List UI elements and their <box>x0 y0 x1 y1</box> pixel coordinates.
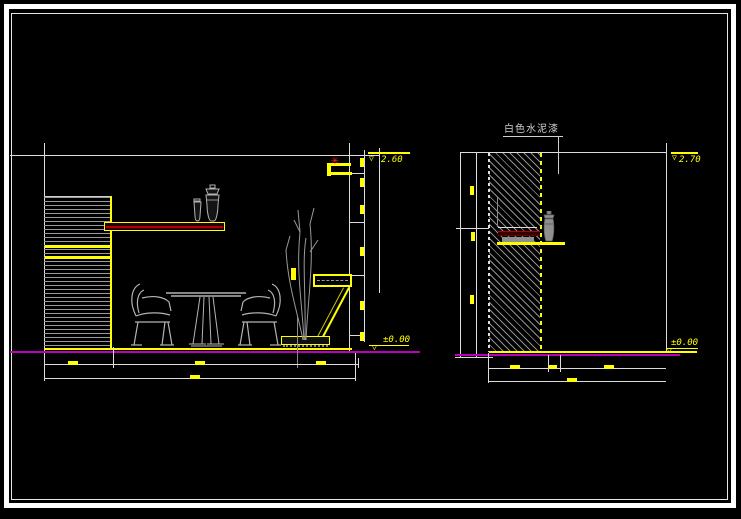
finish-note-label: 白色水泥漆 <box>504 124 559 135</box>
dim-text-mark <box>360 332 364 341</box>
left-floor-line-yellow <box>44 348 352 350</box>
right-floor-elevation-label: ±0.00 <box>671 339 698 348</box>
right-top-elevation-label: 2.70 <box>679 156 701 165</box>
left-floor-line-magenta <box>10 351 420 353</box>
cabinet-stripe <box>45 245 110 248</box>
extension-line <box>355 353 356 381</box>
finish-note-underline <box>503 136 563 137</box>
extension-line <box>297 316 298 368</box>
display-vase <box>542 211 556 242</box>
elevation-triangle-icon: ▽ <box>667 347 672 355</box>
dim-text-mark <box>360 247 364 256</box>
left-extension-line <box>379 148 380 293</box>
extension-line <box>44 353 45 381</box>
dim-text-mark <box>510 365 520 369</box>
dim-connector <box>456 228 489 229</box>
dim-tick <box>358 358 359 368</box>
elevation-triangle-icon: ▽ <box>672 154 677 162</box>
niche-leader <box>497 197 498 227</box>
display-shelf <box>104 222 225 231</box>
dim-text-mark <box>360 205 364 214</box>
left-top-elevation-label: 2.60 <box>381 156 403 165</box>
dim-tick <box>560 355 561 372</box>
right-floor-line-yellow <box>489 351 697 353</box>
dim-text-mark <box>316 361 326 365</box>
dim-text-mark <box>360 301 364 310</box>
dim-text-mark <box>68 361 78 365</box>
right-dim-row-2 <box>488 381 666 382</box>
dim-text-mark <box>195 361 205 365</box>
dim-text-mark <box>470 186 474 195</box>
armchair-right <box>228 282 286 348</box>
dim-text-mark <box>360 158 364 167</box>
niche-top-line <box>498 227 537 228</box>
left-top-line <box>10 155 379 156</box>
sheet-inner-border <box>11 13 728 500</box>
dim-connector <box>349 222 365 223</box>
niche-red-band <box>498 231 540 236</box>
planter-root-marks <box>283 345 328 347</box>
right-extension-line <box>666 143 667 353</box>
dim-text-mark <box>470 295 474 304</box>
cabinet-hatch-panel <box>44 196 111 349</box>
cabinet-right-edge <box>110 196 112 348</box>
left-floor-elevation-label: ±0.00 <box>383 336 410 345</box>
armchair-left <box>126 282 184 348</box>
wall-bracket-bottom <box>327 172 352 175</box>
dim-text-mark <box>604 365 614 369</box>
plant-star-icon: ✳ <box>331 154 339 167</box>
dim-text-mark <box>549 365 557 369</box>
shelf-red-core <box>106 226 223 228</box>
dim-text-mark <box>360 178 364 187</box>
elevation-triangle-icon: ▽ <box>369 155 374 163</box>
elevation-triangle-icon: ▽ <box>372 344 377 352</box>
dim-tick <box>548 355 549 372</box>
niche-shelf-line <box>497 242 565 245</box>
column-hatch <box>489 153 540 352</box>
dim-text-mark <box>471 232 475 241</box>
right-dim-line-outer <box>460 153 461 357</box>
column-edge-right <box>540 153 542 352</box>
cabinet-stripe <box>45 256 110 259</box>
elevation-overline <box>368 152 410 154</box>
right-dim-line-inner <box>476 153 477 357</box>
cad-drawing-canvas: ▽ 2.60 ✳ <box>0 0 741 519</box>
dim-text-mark <box>190 375 200 379</box>
vase-pair <box>187 184 223 223</box>
column-edge-left <box>488 153 490 352</box>
dim-text-mark <box>567 378 577 382</box>
left-vertical-dim-line <box>364 150 365 342</box>
finish-note-leader <box>558 137 559 174</box>
